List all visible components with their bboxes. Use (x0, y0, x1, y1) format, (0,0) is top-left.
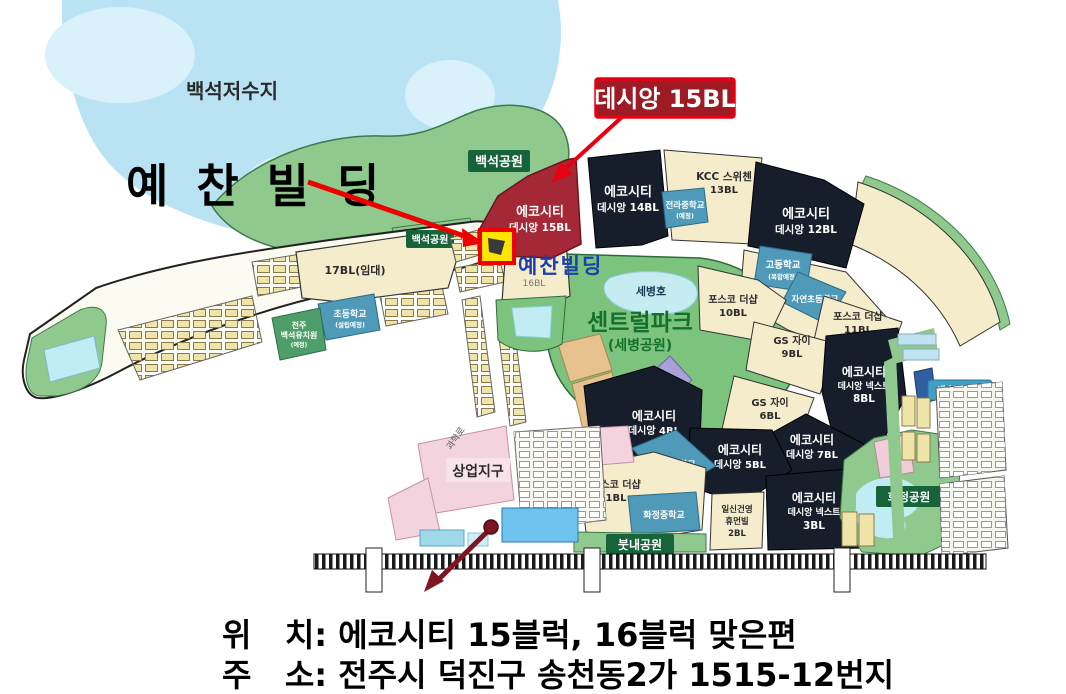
yellow-housing-col (902, 432, 915, 460)
hwajeong-middle-school-label: 화정중학교 (643, 509, 684, 521)
block-9bl-label1: GS 자이 (773, 334, 810, 347)
teal-site-block (420, 530, 464, 546)
block-10bl-label2: 10BL (719, 308, 748, 319)
block-17bl-label: 17BL(임대) (325, 263, 386, 277)
block-2bl-label1: 일신건영 (721, 504, 752, 515)
block-7bl-label1: 에코시티 (790, 432, 834, 447)
peninsula-elementary-sublabel: (설립예정) (335, 320, 365, 329)
map-canvas: 백석저수지 백석공원 17BL(임대) 초등학교 (설립예정) 전주 백석유치원… (0, 0, 1066, 694)
block-3bl-label2: 데시앙 넥스트 (788, 506, 842, 518)
block-16bl-label: 16BL (523, 279, 546, 289)
high-school-label: 고등학교 (766, 259, 801, 271)
cloud-shape (45, 7, 195, 103)
block-14bl-label1: 에코시티 (604, 184, 652, 200)
block-6bl-label1: GS 자이 (751, 396, 788, 409)
block-14bl-label2: 데시앙 14BL (597, 201, 659, 214)
block-13bl-label2: 13BL (710, 185, 739, 196)
blue-site-block (502, 508, 578, 542)
block-8bl-label2: 데시앙 넥스트 (838, 380, 892, 392)
sebyeong-lake-label: 세병호 (636, 284, 666, 298)
central-park-sublabel: (세병공원) (608, 337, 672, 354)
small-pond (512, 306, 552, 338)
butnae-park-label: 붓내공원 (618, 537, 662, 552)
white-housing-grid-pattern (940, 476, 1008, 556)
block-2bl-label3: 2BL (728, 529, 746, 539)
baekseok-kindergarten-label2: 백석유치원 (281, 330, 318, 340)
railroad-track (382, 554, 584, 569)
building-map-label: 예찬빌딩 (518, 254, 603, 278)
road-stub (366, 548, 382, 592)
callout-label: 데시앙 15BL (594, 85, 736, 113)
block-3bl-label1: 에코시티 (792, 490, 836, 505)
block-1bl-label2: 1BL (606, 493, 628, 504)
housing-strip (462, 296, 495, 417)
reservoir-label: 백석저수지 (186, 79, 278, 103)
block-8bl-label3: 8BL (853, 393, 875, 405)
red-dot-marker (484, 520, 498, 534)
block-12bl-label1: 에코시티 (782, 206, 830, 222)
railroad-track (850, 554, 986, 569)
block-5bl-label1: 에코시티 (718, 442, 762, 457)
baekseok-kindergarten-label3: (예정) (291, 341, 308, 349)
jeonra-middle-school-sublabel: (예정) (676, 211, 694, 220)
block-13bl-label1: KCC 스위첸 (696, 170, 752, 183)
yellow-housing-col (917, 434, 930, 462)
block-8bl-label1: 에코시티 (842, 364, 886, 379)
block-10bl-label1: 포스코 더샵 (708, 293, 758, 306)
baekseok-park-label: 백석공원 (475, 155, 523, 170)
block-7bl-label2: 데시앙 7BL (786, 448, 839, 461)
central-park-label: 센트럴파크 (587, 310, 693, 336)
block-11bl-label1: 포스코 더샵 (833, 310, 883, 323)
building-title: 예 찬 빌 딩 (126, 159, 385, 213)
block-5bl-label2: 데시앙 5BL (714, 458, 767, 471)
road-stub (584, 548, 600, 592)
yellow-housing-col (902, 396, 915, 426)
yellow-housing-col (917, 398, 930, 428)
block-15bl-label2: 데시앙 15BL (509, 221, 571, 234)
block-9bl-label2: 9BL (782, 349, 804, 360)
lightblue-row (898, 334, 936, 345)
caption-address: 주 소: 전주시 덕진구 송천동2가 1515-12번지 (222, 650, 894, 694)
commercial-label: 상업지구 (452, 464, 504, 480)
block-3bl-label3: 3BL (803, 520, 825, 532)
white-housing-grid-pattern (936, 382, 1006, 478)
railroad-track (314, 554, 366, 569)
yellow-housing-col (842, 512, 857, 546)
yellow-housing-col (859, 514, 874, 546)
block-12bl-label2: 데시앙 12BL (775, 223, 837, 236)
block-6bl-label2: 6BL (760, 411, 782, 422)
jeonra-middle-school-label: 전라중학교 (665, 200, 704, 211)
block-15bl-label1: 에코시티 (516, 204, 564, 220)
baekseok-kindergarten-label1: 전주 (292, 320, 307, 330)
road-stub (834, 548, 850, 592)
baekseok-park-small-label: 백석공원 (412, 233, 449, 246)
railroad-track (600, 554, 834, 569)
peninsula-elementary-label: 초등학교 (333, 308, 366, 320)
block-2bl-label2: 휴먼빌 (725, 516, 749, 527)
lightblue-row (903, 349, 939, 360)
block-4bl-label1: 에코시티 (632, 408, 676, 423)
location-map: 백석저수지 백석공원 17BL(임대) 초등학교 (설립예정) 전주 백석유치원… (0, 0, 1066, 694)
marker-arrowhead-icon (424, 570, 444, 592)
